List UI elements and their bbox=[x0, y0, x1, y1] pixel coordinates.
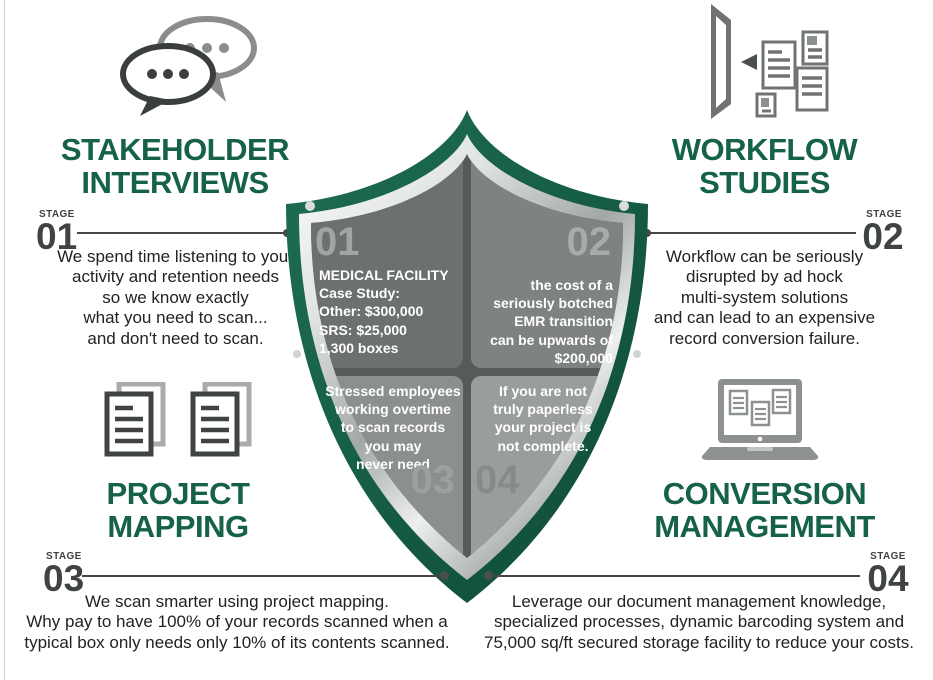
quadrant-1-text: MEDICAL FACILITY Case Study: Other: $300… bbox=[319, 266, 469, 357]
shield-rivet bbox=[305, 201, 315, 211]
conversion-stage-number: 04 bbox=[864, 562, 912, 595]
shield-graphic: 01 MEDICAL FACILITY Case Study: Other: $… bbox=[283, 106, 651, 606]
project-stage-number: 03 bbox=[43, 562, 84, 595]
quadrant-4-number: 04 bbox=[475, 460, 520, 500]
shield-rivet bbox=[633, 350, 641, 358]
page-left-border bbox=[4, 0, 5, 680]
laptop-documents-icon bbox=[700, 377, 820, 469]
stage-4-connector-line bbox=[494, 575, 860, 577]
stage-3-connector-dot bbox=[440, 571, 449, 580]
project-title: PROJECT MAPPING bbox=[28, 477, 328, 544]
project-body: We scan smarter using project mapping. W… bbox=[8, 592, 466, 653]
infographic-canvas: STAKEHOLDER INTERVIEWS STAGE 01 We spend… bbox=[0, 0, 933, 680]
chat-bubbles-icon bbox=[110, 12, 265, 117]
quadrant-1-number: 01 bbox=[315, 222, 360, 262]
stage-1-connector-line bbox=[77, 232, 285, 234]
workflow-body: Workflow can be seriously disrupted by a… bbox=[612, 247, 917, 349]
document-stacks-icon bbox=[97, 382, 259, 468]
conversion-title: CONVERSION MANAGEMENT bbox=[597, 477, 932, 544]
monitor-documents-icon bbox=[697, 4, 832, 119]
shield-rivet bbox=[619, 201, 629, 211]
stage-4-connector-dot bbox=[484, 571, 493, 580]
shield-rivet bbox=[293, 350, 301, 358]
stage-2-connector-line bbox=[650, 232, 856, 234]
quadrant-4-text: If you are not truly paperless your proj… bbox=[473, 382, 613, 455]
quadrant-2-text: the cost of a seriously botched EMR tran… bbox=[453, 276, 613, 367]
conversion-body: Leverage our document management knowled… bbox=[468, 592, 930, 653]
quadrant-3-number: 03 bbox=[343, 460, 455, 500]
workflow-title: WORKFLOW STUDIES bbox=[612, 133, 917, 200]
quadrant-2-number: 02 bbox=[483, 222, 611, 262]
stage-3-connector-line bbox=[82, 575, 440, 577]
